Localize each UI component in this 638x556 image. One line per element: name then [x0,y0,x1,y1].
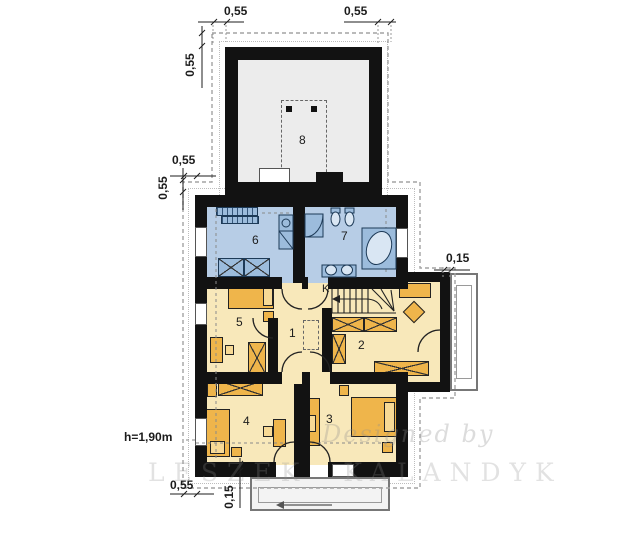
dim-top-right: 0,55 [344,4,367,18]
roof-post-2 [311,106,317,112]
wall-hall-room5 [268,318,278,372]
room-label-utility: 6 [252,233,259,247]
room-label-hall: 1 [289,326,296,340]
desk-room4 [273,419,286,447]
attic-hatch-outline [303,320,319,350]
floor-plan: 1 2 3 4 5 6 7 8 K 0,55 0,55 0,55 0,55 0,… [0,0,638,556]
window-room4 [195,418,207,446]
dim-left-mid-vertical: 0,55 [156,168,170,208]
wall-segment [195,372,282,384]
wall-door-post [302,277,308,289]
wall-hall-room2 [322,308,332,372]
room-label-bedroom5: 5 [236,315,243,329]
wall-segment [225,47,382,60]
drying-rack [216,207,258,216]
roof-post-1 [286,106,292,112]
dim-left-upper: 0,55 [183,45,197,85]
dim-headroom: h=1,90m [124,430,172,444]
utility-cabinet-1 [218,258,244,277]
wall-segment [195,277,282,289]
dim-top-left: 0,55 [224,4,247,18]
pillow-room4 [210,441,225,454]
wardrobe-room2-c [332,334,346,364]
window-room7 [396,228,408,258]
room-label-bedroom2: 2 [358,338,365,352]
terrace-step [258,487,382,503]
pillow-room5 [263,286,273,306]
chair-room5 [225,345,234,355]
chair-room4 [263,426,273,437]
wardrobe-room2-b [364,317,397,332]
watermark-line1: Designed by [322,420,494,448]
wall-segment [225,47,238,195]
wall-segment [440,272,450,392]
utility-cabinet-2 [244,258,270,277]
stairs-label: K [322,283,329,295]
window-room5 [195,303,207,325]
window-room6 [195,227,207,257]
wall-door-post [302,372,310,384]
nightstand-room4 [231,447,242,457]
room-label-bathroom: 7 [341,229,348,243]
wall-segment [225,182,382,195]
wardrobe-room2-a [332,317,364,332]
balcony-railing [456,285,472,379]
dim-balcony: 0,15 [446,251,469,265]
desk-room5 [210,337,223,363]
room-label-bedroom4: 4 [243,414,250,428]
wall-segment [396,382,450,392]
dim-left-mid-horizontal: 0,55 [172,153,195,167]
room-label-void: 8 [299,133,306,147]
wardrobe-room5 [248,342,266,374]
watermark-line2: LESZEK KALANDYK [148,458,563,487]
wall-room6-7-divider [293,195,305,283]
wall-segment [369,47,382,195]
drying-rack-2 [221,216,259,224]
nightstand-room3-a [339,385,349,396]
